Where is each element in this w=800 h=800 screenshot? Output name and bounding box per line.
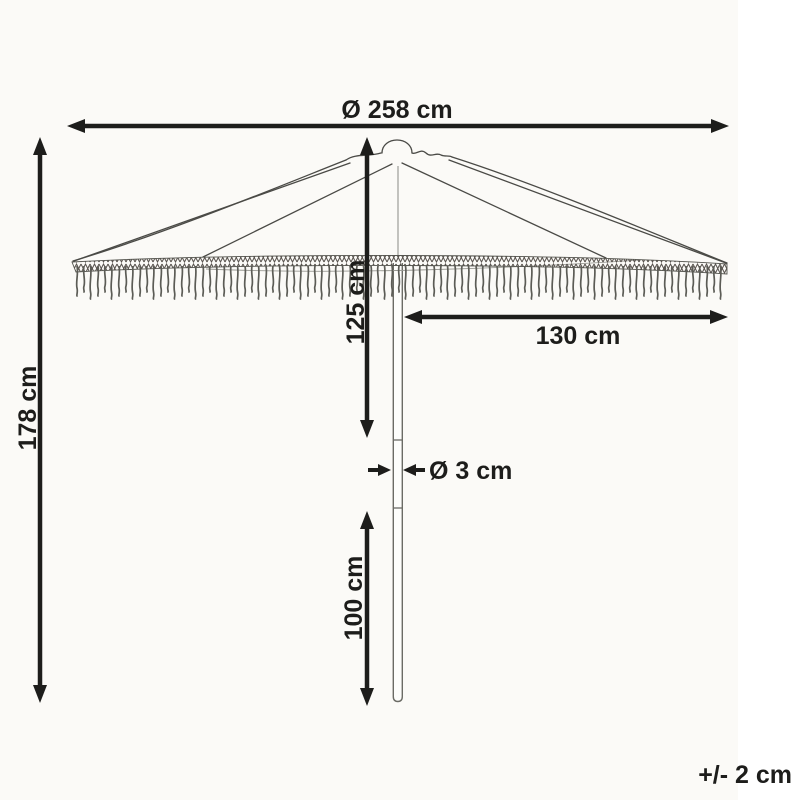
dim-canopy-diameter-label: Ø 258 cm: [341, 96, 452, 124]
tolerance-label: +/- 2 cm: [698, 761, 792, 789]
dim-pole-diameter-label: Ø 3 cm: [429, 457, 512, 485]
background-right-strip: [738, 0, 800, 800]
pole: [393, 263, 402, 702]
canopy-fringe: [74, 266, 724, 302]
dim-lower-height-label: 100 cm: [340, 556, 368, 641]
dim-upper-height-label: 125 cm: [342, 260, 370, 345]
parasol-dimension-diagram: Ø 258 cm 178 cm 125 cm 130 cm Ø 3 cm 100…: [0, 0, 800, 800]
dim-canopy-radius-label: 130 cm: [536, 322, 621, 350]
dim-total-height-label: 178 cm: [14, 366, 42, 451]
